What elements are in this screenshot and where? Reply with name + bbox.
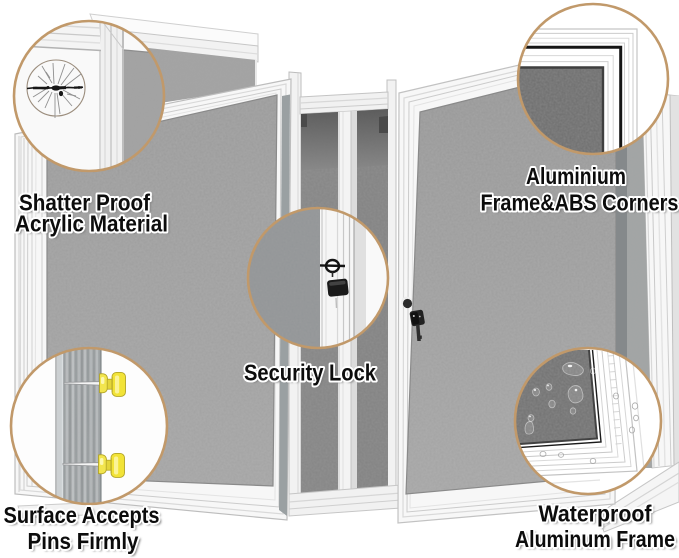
- svg-text:Pins Firmly: Pins Firmly: [28, 528, 139, 554]
- svg-text:Aluminum Frame: Aluminum Frame: [515, 526, 675, 552]
- svg-text:Waterproof: Waterproof: [539, 501, 652, 527]
- svg-text:Frame&ABS Corners: Frame&ABS Corners: [481, 190, 679, 216]
- svg-text:Security Lock: Security Lock: [244, 360, 376, 386]
- svg-text:Acrylic Material: Acrylic Material: [15, 211, 168, 237]
- svg-text:Aluminium: Aluminium: [526, 163, 626, 189]
- svg-text:Surface Accepts: Surface Accepts: [4, 502, 160, 528]
